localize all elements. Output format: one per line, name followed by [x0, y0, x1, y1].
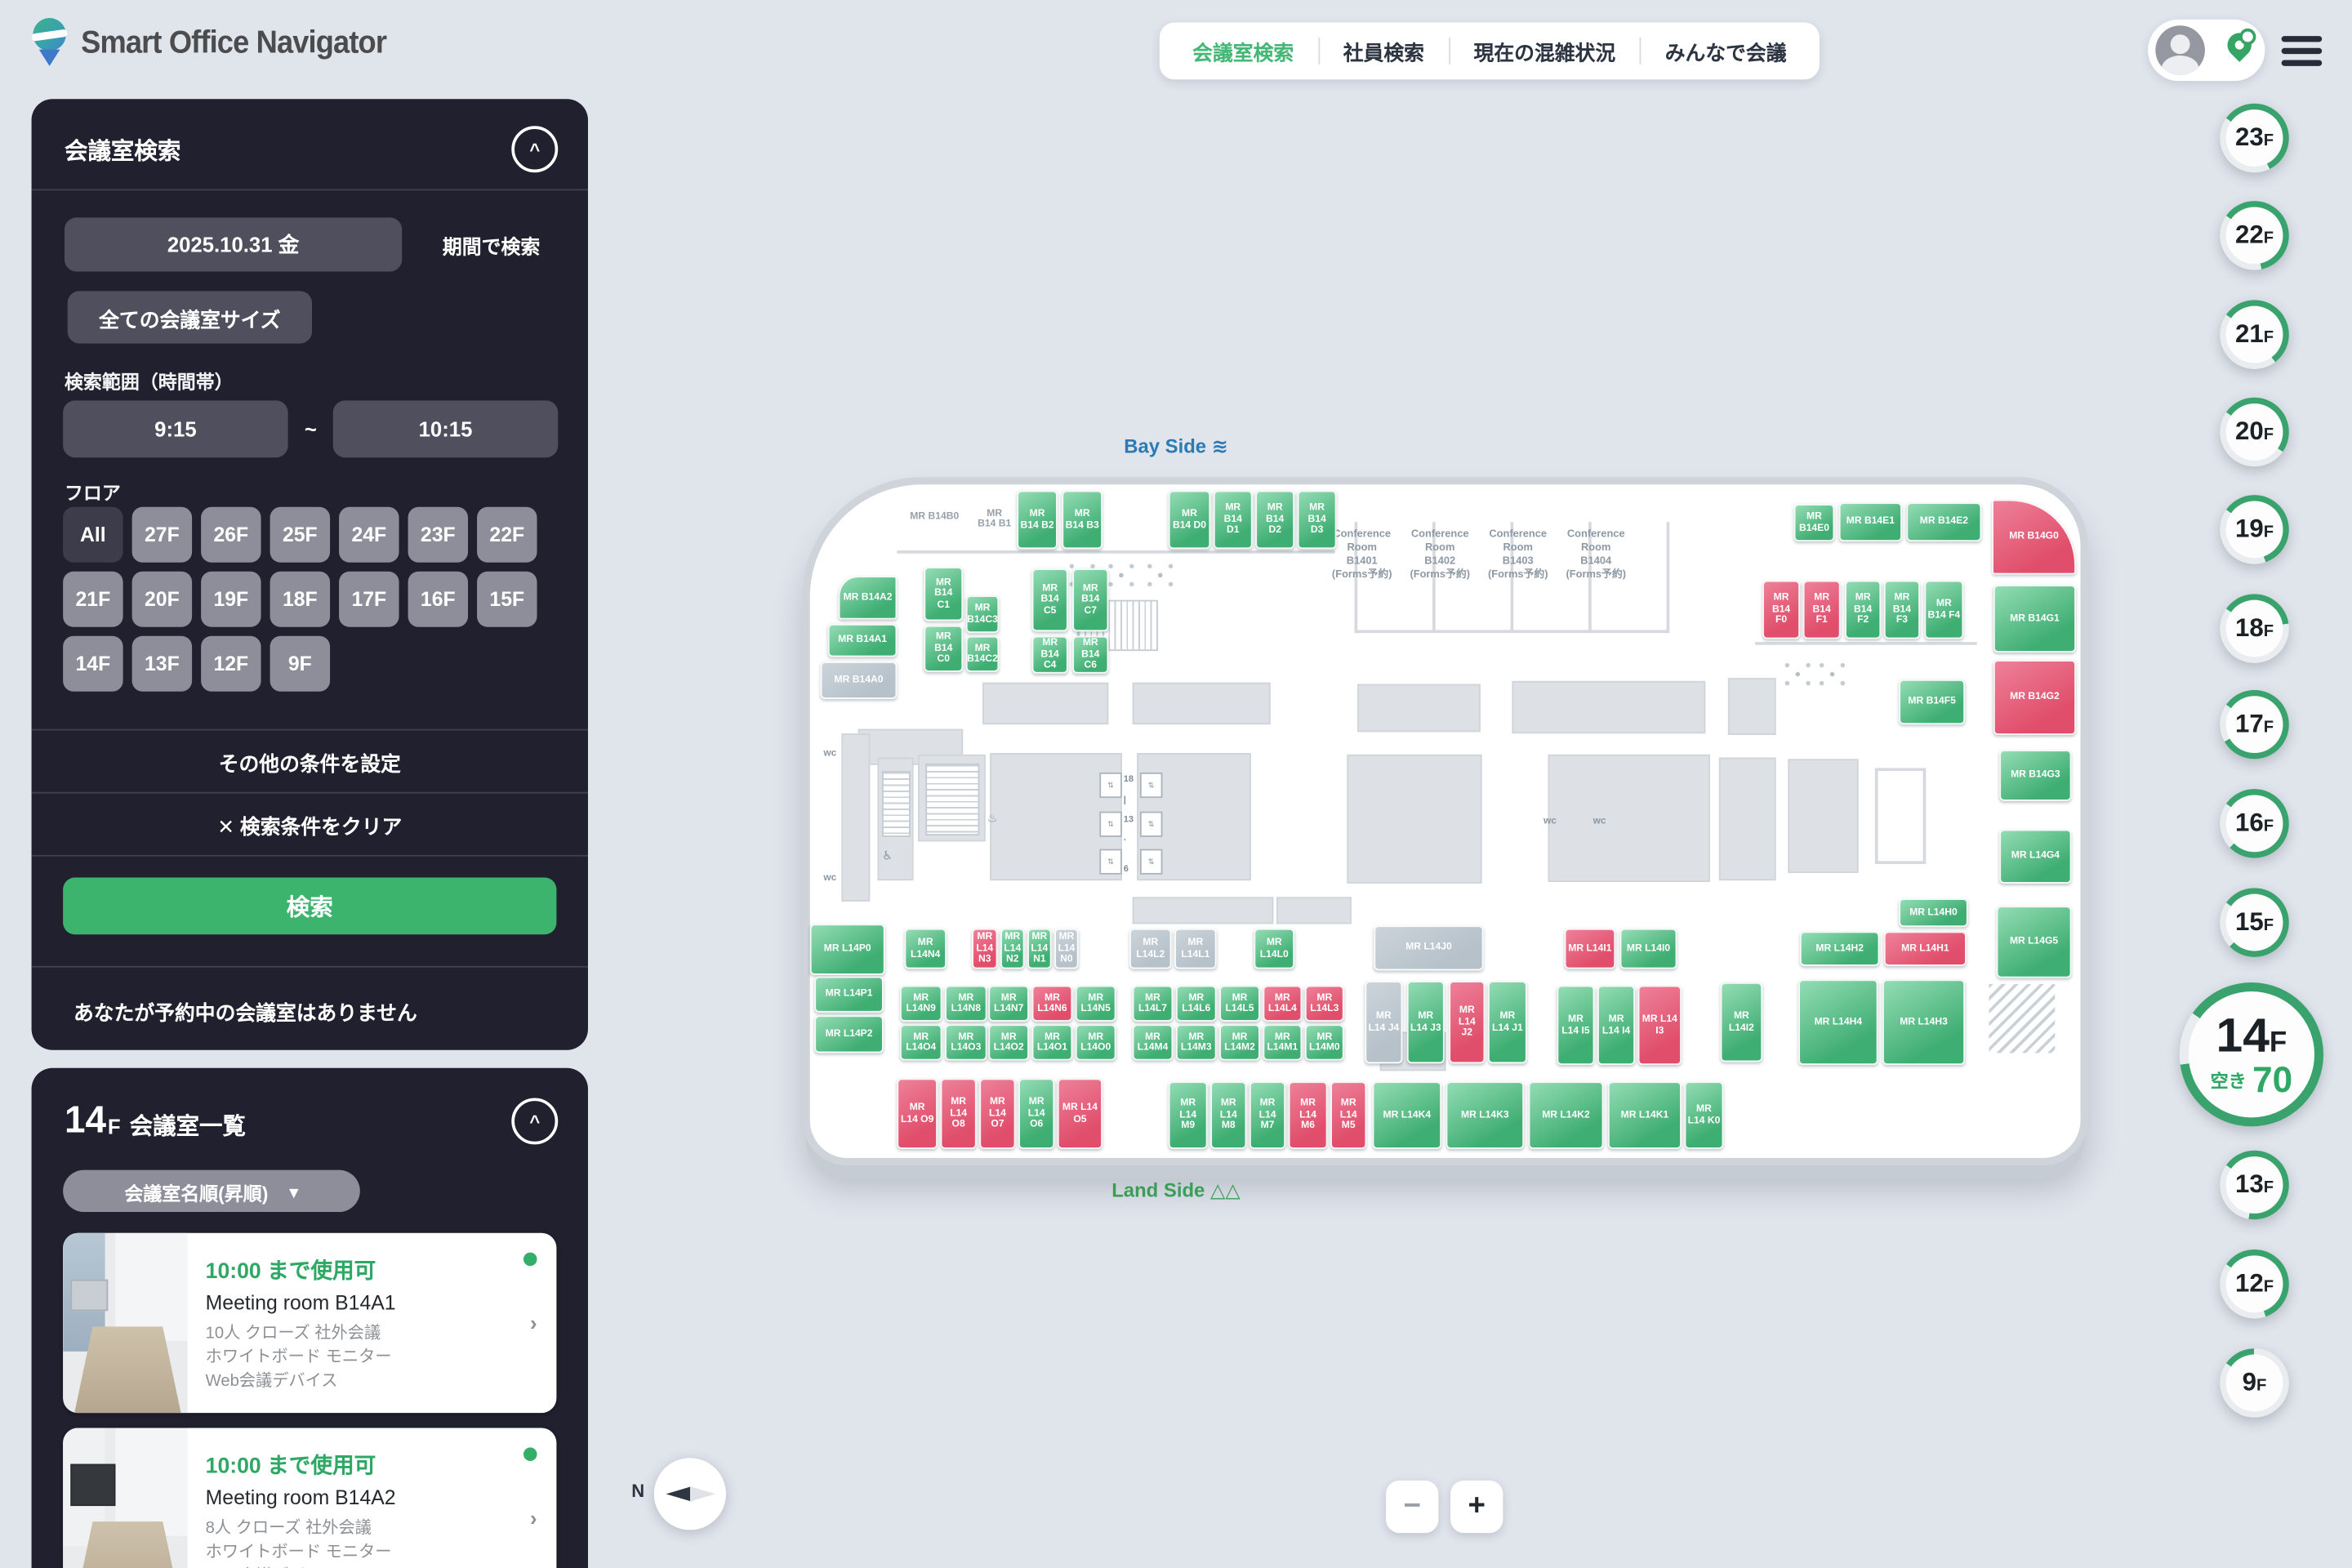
floor-filter-13F[interactable]: 13F	[132, 636, 192, 692]
wc-label: wc	[823, 873, 836, 884]
wall-line	[1875, 861, 1926, 864]
floor-bubble-14F[interactable]: 14F空き70	[2180, 982, 2323, 1126]
floor-bubble-label: 21F	[2235, 319, 2274, 350]
floor-filter-17F[interactable]: 17F	[339, 572, 399, 627]
map-room-MR-B14-C5[interactable]: MR B14 C5	[1032, 568, 1068, 631]
elevator-icon: ⇅	[1140, 812, 1163, 837]
map-room-MR-L14L4[interactable]: MR L14L4	[1263, 986, 1303, 1022]
map-room-MR-L14-J3[interactable]: MR L14 J3	[1407, 981, 1445, 1063]
app-root: Smart Office Navigator 会議室検索社員検索現在の混雑状況み…	[0, 0, 2352, 1568]
map-room-MR-L14H4[interactable]: MR L14H4	[1798, 979, 1878, 1065]
nav-item-0[interactable]: 会議室検索	[1169, 36, 1318, 66]
app-logo: Smart Office Navigator	[30, 18, 406, 69]
nav-item-1[interactable]: 社員検索	[1319, 36, 1448, 66]
available-dot	[523, 1253, 537, 1267]
map-room-MR-L14-O6[interactable]: MR L14 O6	[1018, 1079, 1054, 1149]
map-room-MR-L14-J4[interactable]: MR L14 J4	[1365, 981, 1402, 1063]
map-room-MR-B14-C1[interactable]: MR B14 C1	[924, 567, 963, 621]
floor-bubble-label: 15F	[2235, 907, 2274, 938]
floor-bubble-label: 18F	[2235, 613, 2274, 644]
logo-pin-icon	[30, 18, 69, 69]
room-specs: 10人 クローズ 社外会議ホワイトボード モニターWeb会議デバイス	[206, 1323, 392, 1395]
map-room-MR-B14E2[interactable]: MR B14E2	[1906, 502, 1981, 541]
zoom-out-button[interactable]: −	[1386, 1481, 1438, 1533]
map-room-MR-L14J0[interactable]: MR L14J0	[1374, 925, 1483, 970]
logo-text: Smart Office Navigator	[81, 25, 386, 61]
map-room-MR-B14-B3[interactable]: MR B14 B3	[1062, 491, 1102, 550]
map-room-MR-B14-F3[interactable]: MR B14 F3	[1884, 581, 1920, 639]
collapse-search-icon[interactable]: ^	[511, 126, 558, 172]
floor-filter-21F[interactable]: 21F	[63, 572, 122, 627]
room-name: Meeting room B14A1	[206, 1291, 396, 1314]
floor-filter-22F[interactable]: 22F	[477, 507, 537, 563]
map-room-MR-L14-M7[interactable]: MR L14 M7	[1249, 1081, 1285, 1149]
table-chairs-icon	[1119, 573, 1124, 578]
floor-bubble-label: 16F	[2235, 808, 2274, 839]
floor-bubble-16F[interactable]: 16F	[2220, 789, 2288, 857]
list-floor-number: 14	[65, 1099, 106, 1143]
room-specs: 8人 クローズ 社外会議ホワイトボード モニターWeb会議デバイス	[206, 1518, 392, 1568]
map-room-MR-L14-N3[interactable]: MR L14 N3	[972, 929, 997, 969]
wall-line	[1923, 768, 1927, 864]
map-room-MR-B14-D3[interactable]: MR B14 D3	[1298, 491, 1337, 550]
elevator-icon: ⇅	[1140, 773, 1163, 798]
map-room-MR-L14N4[interactable]: MR L14N4	[905, 929, 947, 969]
hatch-area	[1989, 984, 2055, 1053]
map-room-MR-L14N6[interactable]: MR L14N6	[1032, 986, 1073, 1022]
map-room-MR-L14-O5[interactable]: MR L14 O5	[1058, 1079, 1102, 1149]
map-room-MR-L14L0[interactable]: MR L14L0	[1254, 929, 1294, 969]
map-room-MR-L14M4[interactable]: MR L14M4	[1133, 1024, 1174, 1060]
floor-filter-24F[interactable]: 24F	[339, 507, 399, 563]
map-room-MR-B14-F0[interactable]: MR B14 F0	[1762, 581, 1800, 639]
floor-label: フロア	[65, 477, 121, 506]
room-card[interactable]: 10:00 まで使用可Meeting room B14A28人 クローズ 社外会…	[63, 1428, 556, 1568]
core-block	[1276, 897, 1352, 924]
floor-filter-18F[interactable]: 18F	[270, 572, 330, 627]
floor-filter-26F[interactable]: 26F	[201, 507, 261, 563]
collapse-list-icon[interactable]: ^	[511, 1098, 558, 1144]
map-room-MR-L14-N0[interactable]: MR L14 N0	[1054, 929, 1078, 969]
map-room-MR-L14-I4[interactable]: MR L14 I4	[1597, 986, 1635, 1065]
availability-text: 10:00 まで使用可	[206, 1449, 376, 1481]
avatar[interactable]	[2155, 25, 2205, 75]
map-room-MR-L14O4[interactable]: MR L14O4	[900, 1024, 942, 1060]
elevator-floor-number: 6	[1124, 866, 1129, 875]
map-room-MR-L14H2[interactable]: MR L14H2	[1800, 932, 1879, 966]
map-room-MR-L14-I5[interactable]: MR L14 I5	[1557, 986, 1594, 1065]
map-room-MR-B14F5[interactable]: MR B14F5	[1899, 679, 1965, 724]
core-block	[1133, 683, 1271, 724]
map-room-MR-L14O3[interactable]: MR L14O3	[945, 1024, 987, 1060]
wc-label: wc	[823, 749, 836, 760]
core-block	[841, 733, 870, 902]
core-block	[1357, 684, 1481, 733]
map-room-MR-L14P2[interactable]: MR L14P2	[814, 1015, 883, 1053]
map-room-MR-L14H3[interactable]: MR L14H3	[1882, 979, 1965, 1065]
table-chairs-icon	[1796, 672, 1801, 677]
map-room-MR-L14-O8[interactable]: MR L14 O8	[941, 1079, 977, 1149]
staircase	[925, 764, 979, 835]
list-floor-suffix: F	[108, 1114, 121, 1138]
elevator-floor-number: 18	[1124, 776, 1134, 785]
floor-bubble-label: 19F	[2235, 514, 2274, 545]
map-room-MR-L14-K0[interactable]: MR L14 K0	[1685, 1081, 1724, 1149]
map-room-MR-B14G2[interactable]: MR B14G2	[1993, 660, 2076, 735]
map-room-MR-B14G1[interactable]: MR B14G1	[1993, 585, 2076, 653]
room-name: Meeting room B14A2	[206, 1486, 396, 1509]
nav-item-3[interactable]: みんなで会議	[1641, 36, 1811, 66]
no-reservation-message: あなたが予約中の会議室はありません	[73, 996, 417, 1027]
kettle-icon: ♨	[987, 812, 998, 826]
map-room-MR-L14M3[interactable]: MR L14M3	[1176, 1024, 1217, 1060]
map-room-MR-L14-O9[interactable]: MR L14 O9	[897, 1079, 938, 1149]
map-room-MR-L14K4[interactable]: MR L14K4	[1373, 1081, 1441, 1149]
floor-bubble-20F[interactable]: 20F	[2220, 398, 2288, 466]
map-room-MR-B14C2[interactable]: MR B14C2	[966, 636, 999, 672]
floor-filter-16F[interactable]: 16F	[408, 572, 468, 627]
map-room-MR-B14-B2[interactable]: MR B14 B2	[1017, 491, 1058, 550]
map-room-MR-L14G5[interactable]: MR L14G5	[1997, 906, 2072, 978]
floor-bubble-label: 9F	[2243, 1368, 2267, 1398]
map-room-MR-L14-I3[interactable]: MR L14 I3	[1638, 986, 1682, 1065]
room-card[interactable]: 10:00 まで使用可Meeting room B14A110人 クローズ 社外…	[63, 1233, 556, 1413]
map-room-MR-B14-C7[interactable]: MR B14 C7	[1072, 568, 1108, 631]
floor-bubble-label: 20F	[2235, 417, 2274, 448]
map-room-MR-L14L7[interactable]: MR L14L7	[1133, 986, 1174, 1022]
map-room-MR-B14-C6[interactable]: MR B14 C6	[1072, 636, 1108, 674]
floor-filter-19F[interactable]: 19F	[201, 572, 261, 627]
floor-bubble-21F[interactable]: 21F	[2220, 300, 2288, 368]
core-block	[1728, 678, 1776, 735]
map-room-MR-L14I0[interactable]: MR L14I0	[1620, 929, 1677, 969]
map-room-MR-B14-B1: MR B14 B1	[975, 489, 1014, 549]
floor-filter-All[interactable]: All	[63, 507, 122, 563]
search-panel: 会議室検索 ^ 2025.10.31 金 期間で検索 全ての会議室サイズ 検索範…	[32, 99, 588, 1049]
floor-bubble-12F[interactable]: 12F	[2220, 1249, 2288, 1318]
map-room-MR-L14K2[interactable]: MR L14K2	[1529, 1081, 1604, 1149]
floor-bubble-15F[interactable]: 15F	[2220, 888, 2288, 956]
date-field[interactable]: 2025.10.31 金	[65, 217, 402, 271]
map-room-MR-B14-D0[interactable]: MR B14 D0	[1169, 491, 1210, 550]
map-room-MR-L14L5[interactable]: MR L14L5	[1219, 986, 1260, 1022]
core-block	[1512, 681, 1705, 733]
map-room-MR-L14O1[interactable]: MR L14O1	[1032, 1024, 1073, 1060]
elevator-floor-number: |	[1124, 796, 1126, 805]
period-search-link[interactable]: 期間で検索	[443, 231, 540, 260]
map-room-MR-L14P0[interactable]: MR L14P0	[810, 924, 885, 974]
map-room-MR-L14-M5[interactable]: MR L14 M5	[1330, 1081, 1366, 1149]
chevron-right-icon[interactable]: ›	[530, 1311, 537, 1334]
map-room-MR-B14A0[interactable]: MR B14A0	[821, 661, 898, 699]
map-room-MR-L14-J2[interactable]: MR L14 J2	[1449, 981, 1485, 1063]
map-room-MR-B14A2[interactable]: MR B14A2	[839, 576, 898, 619]
floor-filter-14F[interactable]: 14F	[63, 636, 122, 692]
top-nav: 会議室検索社員検索現在の混雑状況みんなで会議	[1160, 23, 1820, 80]
floor-filter-20F[interactable]: 20F	[132, 572, 192, 627]
room-photo	[63, 1428, 187, 1568]
map-room-MR-L14N8[interactable]: MR L14N8	[945, 986, 987, 1022]
floor-filter-23F[interactable]: 23F	[408, 507, 468, 563]
elevator-icon: ⇅	[1140, 849, 1163, 875]
room-list-panel: 14 F 会議室一覧 ^ 会議室名順(昇順) ▾ 10:00 まで使用可Meet…	[32, 1068, 588, 1568]
floor-bubble-label: 12F	[2235, 1269, 2274, 1299]
elevator-icon: ⇅	[1099, 849, 1122, 875]
map-room-MR-B14-F2[interactable]: MR B14 F2	[1845, 581, 1881, 639]
map-room-MR-L14H0[interactable]: MR L14H0	[1899, 898, 1967, 927]
search-panel-title: 会議室検索	[65, 133, 180, 166]
map-room-MR-B14-C0[interactable]: MR B14 C0	[924, 626, 963, 672]
wall-line	[897, 550, 1334, 554]
map-room-MR-L14M2[interactable]: MR L14M2	[1219, 1024, 1260, 1060]
time-range-label: 検索範囲（時間帯）	[65, 366, 234, 394]
map-room-MR-B14-F4[interactable]: MR B14 F4	[1924, 581, 1963, 639]
map-room-MR-L14-J1[interactable]: MR L14 J1	[1488, 981, 1527, 1063]
floor-filter-grid: All27F26F25F24F23F22F21F20F19F18F17F16F1…	[63, 507, 558, 692]
core-block	[1719, 758, 1776, 881]
chevron-right-icon[interactable]: ›	[530, 1506, 537, 1530]
map-room-MR-L14K3[interactable]: MR L14K3	[1446, 1081, 1525, 1149]
floor-bubble-19F[interactable]: 19F	[2220, 495, 2288, 563]
table-chairs-icon	[1830, 672, 1835, 677]
map-room-MR-L14N5[interactable]: MR L14N5	[1076, 986, 1116, 1022]
core-block	[982, 683, 1108, 724]
core-block	[1347, 755, 1481, 884]
clear-conditions-link[interactable]: ✕ 検索条件をクリア	[32, 810, 588, 840]
more-conditions-link[interactable]: その他の条件を設定	[32, 747, 588, 777]
compass[interactable]	[654, 1458, 726, 1530]
wall-line	[1875, 768, 1926, 771]
map-room-MR-L14L3[interactable]: MR L14L3	[1305, 986, 1344, 1022]
map-room-MR-L14I1[interactable]: MR L14I1	[1565, 929, 1615, 969]
map-room-MR-B14C3[interactable]: MR B14C3	[966, 595, 999, 633]
wall-line	[1355, 630, 1670, 633]
map-room-MR-L14O0[interactable]: MR L14O0	[1076, 1024, 1116, 1060]
map-room-MR-B14E1[interactable]: MR B14E1	[1839, 502, 1902, 541]
room-size-filter[interactable]: 全ての会議室サイズ	[68, 291, 312, 343]
map-room-MR-L14-M9[interactable]: MR L14 M9	[1169, 1081, 1208, 1149]
floor-bubble-18F[interactable]: 18F	[2220, 594, 2288, 662]
conference-room-label: ConferenceRoomB1404(Forms予約)	[1557, 528, 1635, 583]
table-chairs-icon	[1158, 573, 1163, 578]
core-block	[1788, 759, 1858, 873]
availability-text: 10:00 まで使用可	[206, 1254, 376, 1285]
map-room-MR-B14-F1[interactable]: MR B14 F1	[1803, 581, 1841, 639]
wall-line	[1755, 642, 1977, 645]
available-dot	[523, 1447, 537, 1461]
zoom-in-button[interactable]: +	[1450, 1481, 1503, 1533]
map-room-MR-L14N9[interactable]: MR L14N9	[900, 986, 942, 1022]
map-room-MR-L14N7[interactable]: MR L14N7	[988, 986, 1029, 1022]
wall-line	[1667, 522, 1670, 633]
core-block	[1548, 755, 1709, 882]
accessible-icon: ♿	[882, 849, 893, 864]
vacancy-info: 空き70	[2211, 1060, 2293, 1102]
map-room-MR-L14L1[interactable]: MR L14L1	[1174, 929, 1216, 969]
floor-filter-15F[interactable]: 15F	[477, 572, 537, 627]
user-pill[interactable]	[2148, 20, 2265, 81]
conference-room-label: ConferenceRoomB1403(Forms予約)	[1479, 528, 1557, 583]
map-room-MR-B14-C4[interactable]: MR B14 C4	[1032, 636, 1068, 674]
map-room-MR-B14E0[interactable]: MR B14E0	[1794, 504, 1835, 541]
wc-label: wc	[1543, 816, 1557, 827]
map-room-MR-L14-M6[interactable]: MR L14 M6	[1289, 1081, 1328, 1149]
map-room-MR-L14O2[interactable]: MR L14O2	[988, 1024, 1029, 1060]
room-photo	[63, 1233, 187, 1413]
floor-bubble-label: 14F	[2216, 1007, 2287, 1062]
floor-bubble-22F[interactable]: 22F	[2220, 201, 2288, 269]
staircase	[882, 771, 911, 837]
magnifier-icon	[2239, 29, 2256, 45]
bay-side-label: Bay Side ≋	[0, 435, 2352, 459]
floor-bubble-label: 22F	[2235, 220, 2274, 251]
map-room-MR-B14G3[interactable]: MR B14G3	[1999, 750, 2071, 800]
map-room-MR-B14A1[interactable]: MR B14A1	[828, 624, 897, 657]
floor-bubble-17F[interactable]: 17F	[2220, 690, 2288, 759]
core-block	[1133, 897, 1274, 924]
compass-north-label: N	[631, 1481, 644, 1502]
conference-room-label: ConferenceRoomB1402(Forms予約)	[1401, 528, 1479, 583]
map-room-MR-B14B0: MR B14B0	[900, 492, 969, 542]
hamburger-menu-icon[interactable]	[2282, 36, 2323, 72]
wall-line	[1875, 768, 1878, 864]
floor-filter-27F[interactable]: 27F	[132, 507, 192, 563]
map-room-MR-L14L2[interactable]: MR L14L2	[1129, 929, 1171, 969]
map-room-MR-L14-M8[interactable]: MR L14 M8	[1210, 1081, 1246, 1149]
map-room-MR-L14I2[interactable]: MR L14I2	[1721, 982, 1762, 1062]
elevator-floor-number: ·	[1124, 837, 1127, 846]
floor-bubble-label: 17F	[2235, 710, 2274, 740]
search-button[interactable]: 検索	[63, 877, 556, 934]
elevator-icon: ⇅	[1099, 773, 1122, 798]
wc-label: wc	[1593, 816, 1606, 827]
map-room-MR-L14-N2[interactable]: MR L14 N2	[1000, 929, 1024, 969]
map-room-MR-L14H1[interactable]: MR L14H1	[1884, 932, 1967, 966]
map-room-MR-L14M1[interactable]: MR L14M1	[1263, 1024, 1303, 1060]
floor-bubble-label: 23F	[2235, 123, 2274, 154]
map-room-MR-L14M0[interactable]: MR L14M0	[1305, 1024, 1344, 1060]
room-list-title: 会議室一覧	[130, 1107, 246, 1140]
clear-icon: ✕	[217, 816, 234, 839]
floor-filter-25F[interactable]: 25F	[270, 507, 330, 563]
floor-bubble-label: 13F	[2235, 1170, 2274, 1200]
map-room-MR-L14K1[interactable]: MR L14K1	[1608, 1081, 1682, 1149]
map-room-MR-B14-D2[interactable]: MR B14 D2	[1255, 491, 1294, 550]
elevator-floor-number: 13	[1124, 816, 1134, 825]
map-room-MR-B14-D1[interactable]: MR B14 D1	[1214, 491, 1253, 550]
nav-item-2[interactable]: 現在の混雑状況	[1450, 36, 1639, 66]
elevator-icon: ⇅	[1099, 812, 1122, 837]
map-room-MR-L14P1[interactable]: MR L14P1	[814, 977, 883, 1013]
land-side-label: Land Side △△	[0, 1179, 2352, 1203]
floor-filter-12F[interactable]: 12F	[201, 636, 261, 692]
floor-bubble-23F[interactable]: 23F	[2220, 104, 2288, 172]
map-room-MR-L14L6[interactable]: MR L14L6	[1176, 986, 1217, 1022]
floor-bubble-9F[interactable]: 9F	[2220, 1348, 2288, 1417]
floor-bubble-13F[interactable]: 13F	[2220, 1151, 2288, 1219]
map-room-MR-L14-N1[interactable]: MR L14 N1	[1027, 929, 1051, 969]
floor-filter-9F[interactable]: 9F	[270, 636, 330, 692]
map-room-MR-L14-O7[interactable]: MR L14 O7	[979, 1079, 1015, 1149]
map-room-MR-L14G4[interactable]: MR L14G4	[1999, 830, 2071, 884]
